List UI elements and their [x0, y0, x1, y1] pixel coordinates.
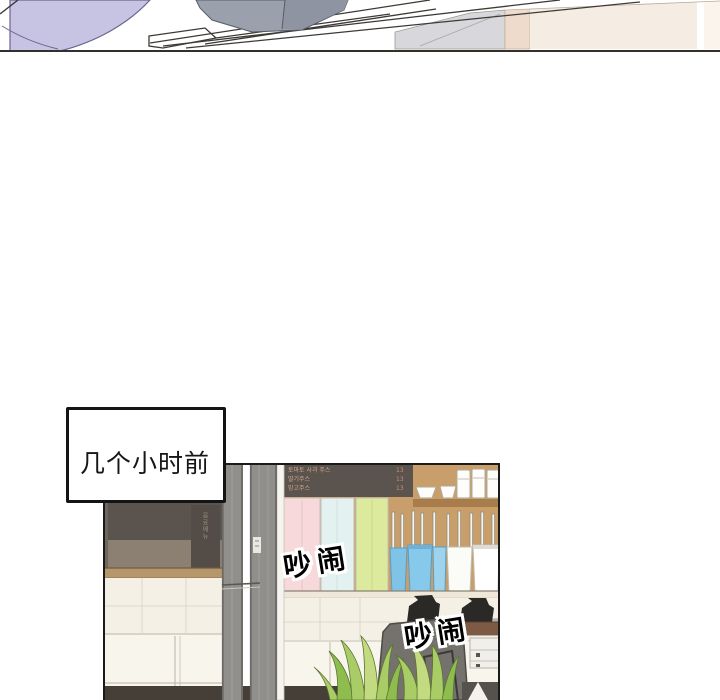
blue-tumbler: [390, 548, 407, 593]
menu-row-3: 망고주스: [288, 486, 310, 492]
background-wall-panels: [395, 1, 720, 49]
comic-page: 토마토 사과 주스 13 딸기주스 13 망고주스 13 음료메뉴 几个小时前 …: [0, 0, 720, 700]
cabinets-left: [105, 633, 227, 686]
blue-tumbler: [433, 547, 446, 593]
caption-box: 几个小时前: [66, 407, 226, 503]
bowl: [416, 487, 436, 498]
cup-stack: [472, 469, 485, 498]
door-label: [253, 537, 261, 553]
caption-text: 几个小时前: [80, 444, 210, 480]
top-panel-border: [0, 50, 720, 52]
top-panel: [0, 0, 720, 53]
menu-price-3: 13: [396, 486, 404, 492]
lavender-figure: [0, 0, 150, 51]
menu-row-1: 토마토 사과 주스: [288, 468, 330, 474]
drawer-knob: [476, 664, 480, 667]
cup-stack: [457, 470, 470, 498]
blue-tumbler: [408, 545, 432, 593]
drawer-unit: [470, 638, 500, 668]
side-board-vertical-text: 음료메뉴: [196, 512, 208, 540]
white-tumbler: [473, 545, 499, 593]
wall-shelf: [105, 568, 227, 578]
menu-price-2: 13: [396, 477, 404, 483]
door-edge: [277, 465, 284, 700]
menu-price-1: 13: [396, 468, 404, 474]
bowl: [440, 486, 456, 498]
door-frame: [222, 465, 277, 700]
menu-row-2: 딸기주스: [288, 477, 310, 483]
tile-wall-left: [105, 578, 227, 633]
white-tumbler: [447, 547, 472, 593]
drawer-knob: [476, 653, 480, 657]
cup-stack: [487, 470, 500, 498]
lower-shelf: [284, 591, 500, 598]
